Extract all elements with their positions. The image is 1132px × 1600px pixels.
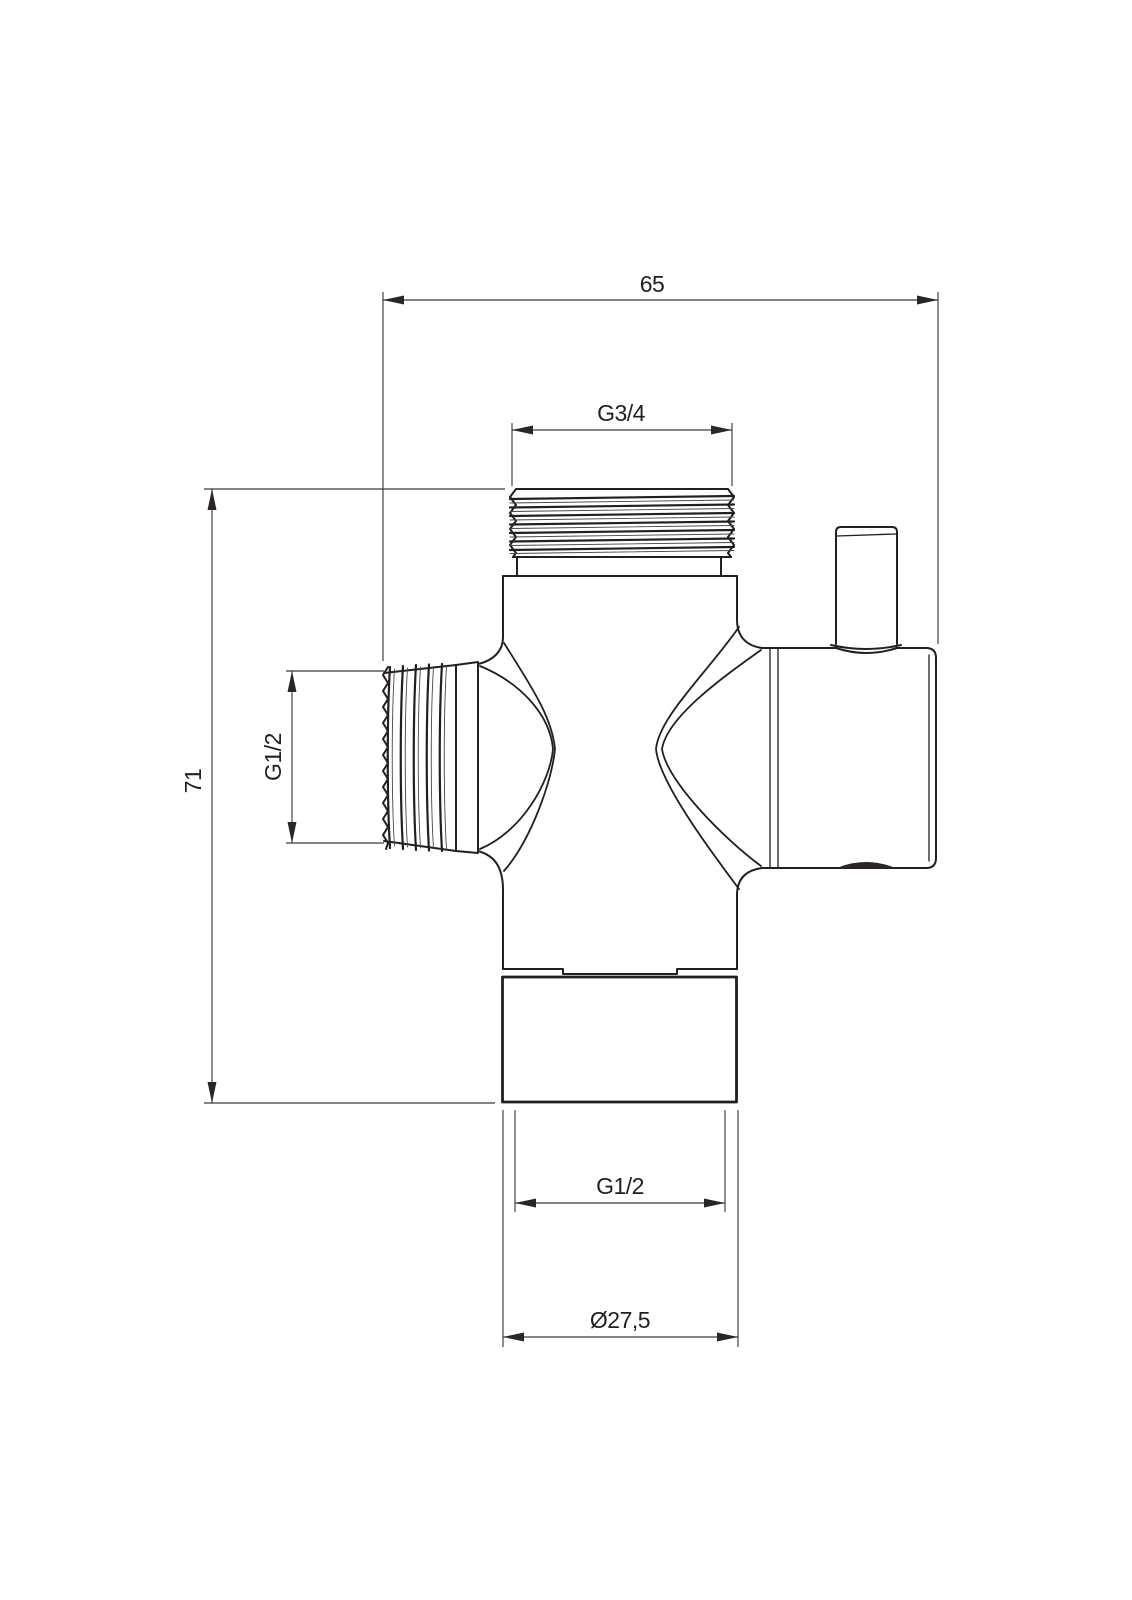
bottom-cylinder — [503, 977, 737, 1102]
dim-label-overall-width: 65 — [640, 271, 665, 297]
dim-label-side-thread: G1/2 — [260, 733, 286, 781]
dimension-bottom-thread: G1/2 — [515, 1110, 725, 1212]
dim-label-bottom-thread: G1/2 — [596, 1173, 644, 1199]
dimension-overall-width: 65 — [383, 271, 938, 661]
diverter-valve-drawing: 65 G3/4 G1/2 71 G1/2 — [0, 0, 1132, 1600]
dimension-top-thread: G3/4 — [512, 400, 732, 486]
side-cap — [762, 648, 936, 868]
diverter-knob — [831, 527, 901, 649]
dimension-side-thread: G1/2 — [260, 671, 384, 843]
dim-label-top-thread: G3/4 — [597, 400, 646, 426]
dim-label-bottom-diameter: Ø27,5 — [590, 1307, 650, 1333]
dim-label-overall-height: 71 — [180, 769, 206, 794]
technical-drawing-page: 65 G3/4 G1/2 71 G1/2 — [0, 0, 1132, 1600]
dimension-bottom-diameter: Ø27,5 — [503, 1110, 738, 1347]
left-thread-g12 — [383, 662, 478, 853]
top-thread-g34 — [510, 489, 734, 576]
valve-body — [478, 576, 762, 974]
